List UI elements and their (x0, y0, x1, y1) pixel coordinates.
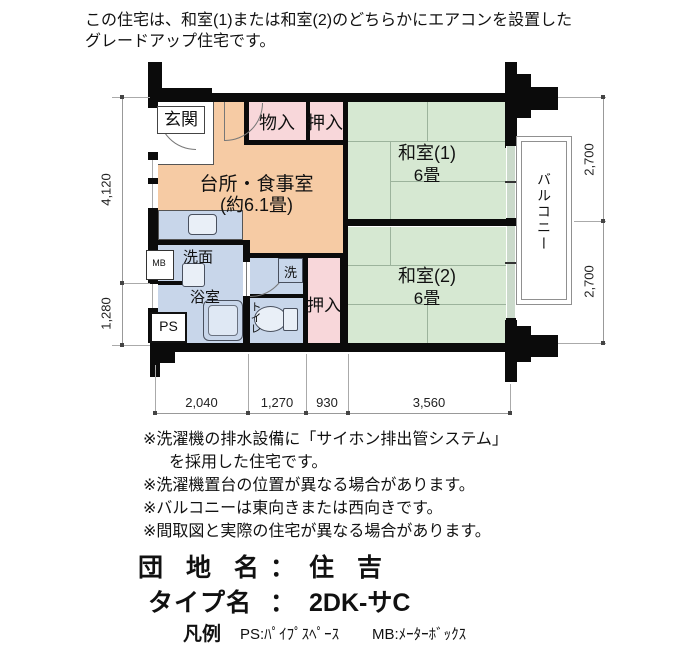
kitchen-size-label: (約6.1畳) (165, 191, 348, 217)
dimension-tick (346, 411, 350, 415)
pipe-space-label: PS (150, 318, 187, 334)
extension-line (112, 345, 150, 346)
dimension-line-bottom (155, 413, 511, 414)
note-line-3: ※洗濯機置台の位置が異なる場合があります。 (143, 474, 508, 497)
dimension-tick (153, 411, 157, 415)
dimension-tick (601, 341, 605, 345)
dimension-tick (120, 281, 124, 285)
window-opening (148, 284, 158, 308)
toilet-label: トイレ (247, 301, 263, 343)
window-glass-line (152, 160, 153, 178)
dimension-tick (304, 411, 308, 415)
inner-wall (244, 140, 348, 145)
pillar-bottom-right (531, 335, 558, 357)
dimension-tick (120, 95, 124, 99)
dimension-tick (246, 411, 250, 415)
dim-bottom-2: 1,270 (248, 395, 306, 410)
washroom-label: 洗面 (183, 246, 213, 267)
dim-bottom-3: 930 (306, 395, 348, 410)
dim-right-top: 2,700 (582, 130, 597, 190)
notes-block: ※洗濯機の排水設備に「サイホン排出管システム」 を採用した住宅です。 ※洗濯機置… (143, 428, 508, 543)
dim-left-bottom: 1,280 (99, 284, 114, 344)
estate-name-value: 住 吉 (309, 554, 390, 582)
pillar-bottom-right (505, 320, 517, 382)
legend-title: 凡例 (183, 619, 221, 646)
type-name-row: タイプ名：2DK-サC (148, 583, 410, 619)
toilet-tank (283, 308, 298, 331)
japanese-room-1-size: 6畳 (348, 161, 506, 186)
type-name-separator: ： (270, 589, 295, 617)
pillar-top-right (517, 74, 531, 118)
dim-left-top: 4,120 (99, 160, 114, 220)
dimension-tick (120, 343, 124, 347)
note-line-5: ※間取図と実際の住宅が異なる場合があります。 (143, 520, 508, 543)
tatami-line (427, 304, 428, 343)
oshiire-top-label: 押入 (302, 109, 348, 135)
dimension-line-left (122, 97, 123, 345)
type-name-label: タイプ名 (148, 583, 270, 619)
dimension-tick (508, 411, 512, 415)
pillar-top-right (531, 87, 558, 110)
legend-mb: MB:ﾒｰﾀｰﾎﾞｯｸｽ (372, 623, 466, 644)
estate-name-label: 団 地 名 (138, 548, 270, 584)
entrance-label-box: 玄関 (157, 106, 205, 134)
pillar-top-left (148, 88, 212, 102)
extension-line (558, 343, 606, 344)
outer-wall-bottom (150, 343, 516, 352)
window-opening (148, 160, 158, 178)
washing-machine-label: 洗 (278, 262, 303, 281)
dim-bottom-1: 2,040 (155, 395, 248, 410)
note-line-2: を採用した住宅です。 (169, 451, 508, 474)
estate-name-row: 団 地 名：住 吉 (138, 548, 390, 584)
japanese-room-2-size: 6畳 (348, 284, 506, 309)
dimension-tick (601, 219, 605, 223)
extension-line (120, 283, 150, 284)
floor-plan-page: この住宅は、和室(1)または和室(2)のどちらかにエアコンを設置した グレードア… (0, 0, 700, 650)
dim-right-bottom: 2,700 (582, 252, 597, 312)
balcony-label: バルコニー (534, 172, 554, 252)
kitchen-sink (188, 214, 217, 235)
storage-closet-label: 物入 (246, 109, 308, 135)
tatami-line (427, 102, 428, 141)
bathroom-label: 浴室 (190, 286, 220, 307)
extension-line (558, 97, 606, 98)
note-line-4: ※バルコニーは東向きまたは西向きです。 (143, 497, 508, 520)
meter-box-label: MB (146, 258, 172, 268)
type-name-value: 2DK-サC (309, 589, 410, 617)
inner-wall (148, 240, 245, 245)
dim-bottom-4: 3,560 (348, 395, 510, 410)
estate-name-separator: ： (270, 554, 295, 582)
pillar-bottom-right (517, 326, 531, 362)
extension-line (112, 97, 150, 98)
window-opening (148, 184, 158, 208)
hall-door-leaf (246, 262, 247, 296)
room-divider-wall (348, 219, 516, 226)
bathtub-inner (208, 305, 238, 336)
entrance-label: 玄関 (158, 107, 204, 133)
window-glass-line (152, 284, 153, 308)
balcony-window-2 (506, 226, 516, 318)
oshiire-bottom-label: 押入 (300, 291, 348, 316)
dimension-tick (601, 95, 605, 99)
note-line-1: ※洗濯機の排水設備に「サイホン排出管システム」 (143, 428, 508, 451)
tatami-line (390, 227, 391, 266)
legend-ps: PS:ﾊﾟｲﾌﾟｽﾍﾟｰｽ (240, 623, 339, 644)
window-glass-line (152, 184, 153, 208)
header-line-2: グレードアップ住宅です。 (85, 27, 275, 51)
